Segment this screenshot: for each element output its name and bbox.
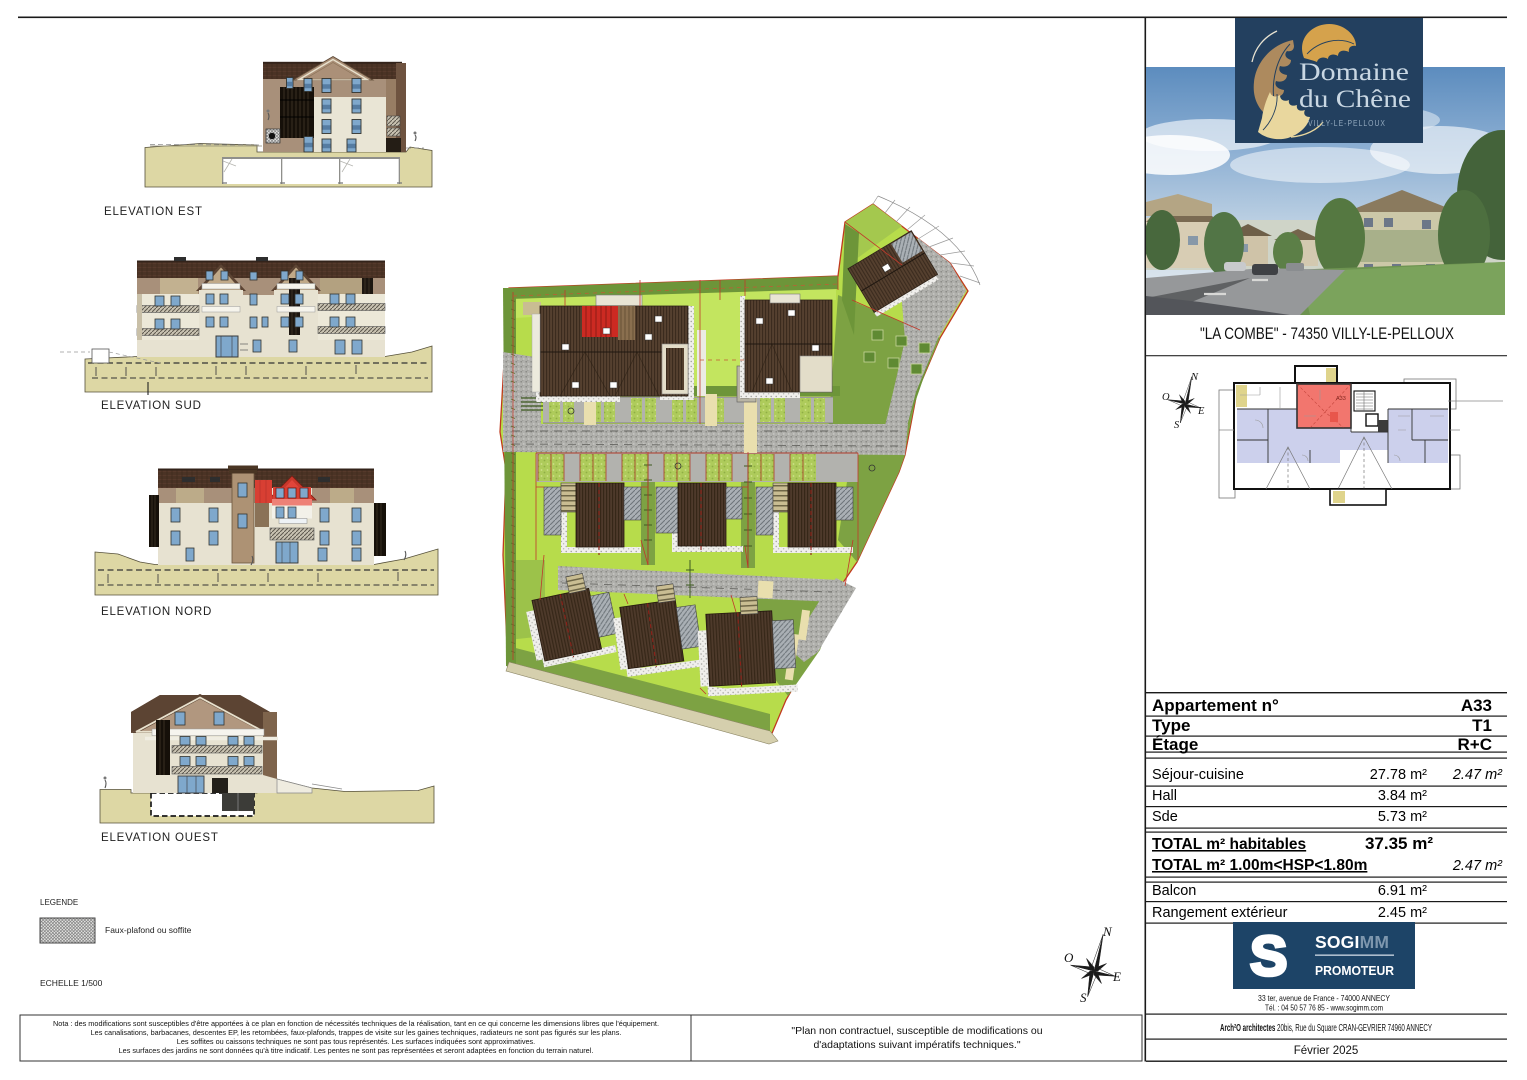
svg-text:27.78 m²: 27.78 m² <box>1370 767 1427 783</box>
svg-text:Les surfaces des jardins ne so: Les surfaces des jardins ne sont données… <box>119 1046 594 1055</box>
svg-text:33 ter, avenue de France - 740: 33 ter, avenue de France - 74000 ANNECY <box>1258 994 1390 1003</box>
svg-text:E: E <box>1197 406 1205 417</box>
svg-text:E: E <box>1112 969 1121 984</box>
svg-text:ELEVATION EST: ELEVATION EST <box>104 206 203 218</box>
svg-text:d'adaptations suivant impérati: d'adaptations suivant impératifs techniq… <box>813 1039 1020 1051</box>
svg-text:Appartement n°: Appartement n° <box>1152 696 1279 715</box>
svg-text:"Plan non contractuel, suscept: "Plan non contractuel, susceptible de mo… <box>791 1025 1042 1037</box>
svg-text:Les soffites ou caissons techn: Les soffites ou caissons techniques ne s… <box>177 1037 535 1046</box>
svg-text:Étage: Étage <box>1152 735 1198 754</box>
svg-text:S: S <box>1250 924 1287 987</box>
svg-text:3.84 m²: 3.84 m² <box>1378 788 1427 804</box>
svg-text:S: S <box>1080 990 1087 1005</box>
svg-text:TOTAL m² habitables: TOTAL m² habitables <box>1152 836 1306 853</box>
svg-text:TOTAL m² 1.00m<HSP<1.80m: TOTAL m² 1.00m<HSP<1.80m <box>1152 857 1367 874</box>
svg-text:Les canalisations, barbacanes,: Les canalisations, barbacanes, descentes… <box>91 1028 622 1037</box>
svg-text:S: S <box>1174 420 1180 431</box>
svg-text:Février 2025: Février 2025 <box>1294 1045 1359 1057</box>
svg-text:T1: T1 <box>1472 716 1492 735</box>
svg-text:VILLY-LE-PELLOUX: VILLY-LE-PELLOUX <box>1308 119 1386 128</box>
svg-text:A33: A33 <box>1336 396 1346 402</box>
svg-text:O: O <box>1064 950 1074 965</box>
svg-text:Sde: Sde <box>1152 809 1178 825</box>
svg-text:2.47 m²: 2.47 m² <box>1452 858 1503 874</box>
svg-text:N: N <box>1102 924 1113 939</box>
svg-text:O: O <box>1162 392 1170 403</box>
svg-text:PROMOTEUR: PROMOTEUR <box>1315 963 1395 978</box>
svg-text:Type: Type <box>1152 716 1190 735</box>
svg-text:LEGENDE: LEGENDE <box>40 898 78 907</box>
svg-text:37.35 m²: 37.35 m² <box>1365 834 1433 853</box>
svg-text:2.47 m²: 2.47 m² <box>1452 767 1503 783</box>
svg-text:Nota : des modifications sont: Nota : des modifications sont susceptibl… <box>53 1019 659 1028</box>
svg-text:Arch²O architectes 20bis, Rue: Arch²O architectes 20bis, Rue du Square … <box>1220 1023 1432 1034</box>
svg-text:Domaine: Domaine <box>1299 59 1409 86</box>
svg-text:ELEVATION OUEST: ELEVATION OUEST <box>101 832 219 844</box>
svg-text:Séjour-cuisine: Séjour-cuisine <box>1152 767 1244 783</box>
svg-text:Faux-plafond ou soffite: Faux-plafond ou soffite <box>105 925 192 935</box>
svg-text:6.91 m²: 6.91 m² <box>1378 883 1427 899</box>
svg-text:SOGIMM: SOGIMM <box>1315 932 1389 952</box>
svg-text:5.73 m²: 5.73 m² <box>1378 809 1427 825</box>
svg-text:ELEVATION NORD: ELEVATION NORD <box>101 606 212 618</box>
svg-text:ECHELLE 1/500: ECHELLE 1/500 <box>40 978 103 988</box>
svg-text:ELEVATION SUD: ELEVATION SUD <box>101 400 202 412</box>
svg-text:du Chêne: du Chêne <box>1299 86 1411 113</box>
svg-text:N: N <box>1190 372 1199 383</box>
svg-text:Balcon: Balcon <box>1152 883 1196 899</box>
svg-text:"LA COMBE" - 74350 VILLY-LE-PE: "LA COMBE" - 74350 VILLY-LE-PELLOUX <box>1200 325 1454 343</box>
svg-text:Hall: Hall <box>1152 788 1177 804</box>
svg-text:Rangement extérieur: Rangement extérieur <box>1152 905 1288 921</box>
svg-text:R+C: R+C <box>1458 735 1492 754</box>
svg-text:A33: A33 <box>1461 696 1492 715</box>
svg-text:2.45 m²: 2.45 m² <box>1378 905 1427 921</box>
svg-text:Tél. : 04 50 57 76 85 - www.so: Tél. : 04 50 57 76 85 - www.sogimm.com <box>1265 1004 1383 1013</box>
